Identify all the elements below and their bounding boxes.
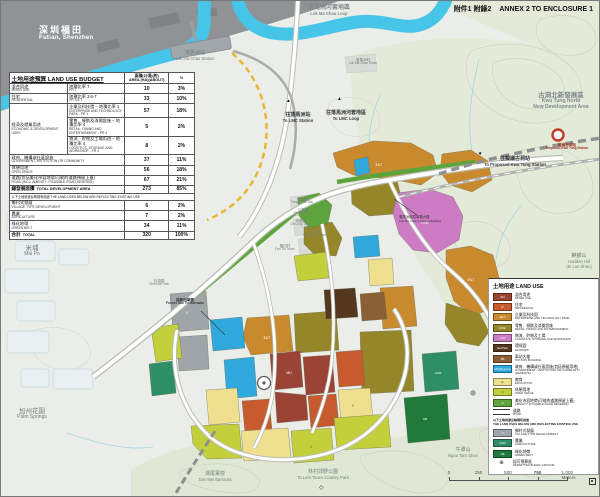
swatch-green-belt: GB (493, 450, 512, 458)
map-label-lmc-loop: 落馬洲河套地區 Lok Ma Chau Loop (308, 5, 350, 17)
swatch-education: E (493, 378, 512, 386)
map-label-yan-sau-wai: 仁壽圍 Yan Sau Wai (294, 208, 312, 216)
swatch-logistics: LSW (493, 334, 512, 342)
swatch-enterprise: E&T (493, 313, 512, 321)
annex-title-en: ANNEX 2 TO ENCLOSURE 1 (499, 6, 593, 13)
table-row: 休憩用地OPEN SPACE 56 18% (10, 165, 195, 175)
map-label-kwu-tung-north: 古洞北新發展區 Kwu Tung North New Development A… (533, 92, 588, 111)
legend-item-agriculture: AGR 農業AGRICULTURE (493, 439, 594, 447)
road-symbol-icon (493, 409, 510, 415)
table-row: 政府、機構或社區設施GOVERNMENT, INSTITUTION OR COM… (10, 155, 195, 165)
legend-item-residential: R 住宅RESIDENTIAL (493, 303, 594, 311)
proposed-kwu-tung-station-icon (553, 130, 564, 141)
map-label-haddon-hill: 麒麟山 Haddon Hill (Ki Lun Shan) (566, 254, 592, 269)
legend-item-road: 道路ROAD (493, 409, 594, 416)
map-label-former-san-tin-barracks: 前新田軍營 Former San Tin Barracks (166, 298, 204, 306)
map-label-mai-po: 米埔 Mai Po (24, 245, 40, 258)
north-indicator-icon (589, 478, 596, 485)
table-row: 道路(包括美化市容地帶/可能的道路預留上蓋)ROAD (INCL. AMENIT… (10, 175, 195, 185)
diamond-icon: ◇ (319, 484, 324, 491)
map-label-on-lung-tsuen: 安龍村 On Lung Tsuen (290, 219, 312, 227)
svg-text:E&T: E&T (468, 278, 476, 282)
svg-text:GB: GB (423, 417, 427, 421)
table-note-row: 以下土地用途反映現有用途 THE LAND USES BELOW ARE REF… (10, 193, 195, 200)
land-use-legend: 土地用途 LAND USE MU 混合用途MIXED USE R 住宅RESID… (488, 278, 599, 475)
map-label-to-proposed-kwu-tung: 往擬議古洞站 To Proposed Kwu Tung Station (484, 157, 546, 168)
scale-tick-label: 500 (504, 470, 512, 475)
zone-ecopark (324, 288, 358, 319)
annex-title-zh: 附件1 附錄2 (454, 6, 492, 13)
swatch-retail-dining: RDE (493, 324, 512, 332)
swatch-ecopark: EcoPark (493, 344, 512, 352)
scale-tick-label: 0 (448, 470, 451, 475)
col-header-pct: % (169, 73, 195, 84)
svg-text:E: E (352, 404, 354, 408)
map-label-proposed-kwu-tung-station: 擬議古洞站 Proposed Kwu Tung Station (546, 143, 588, 151)
legend-item-village: V 鄉村式發展VILLAGE TYPE DEVELOPMENT (493, 429, 594, 437)
map-label-lmc-station: 落馬洲站 Lok Ma Chau Station (175, 51, 214, 62)
map-label-tung-chan-wai: 東鎮圍 Tung Chan Wai (291, 197, 313, 205)
table-row: 經濟及就業用途ECONOMIC & DEVELOPMENT USES 企業及科技… (10, 104, 195, 118)
map-label-lam-tsuen-country-park: 林村郊野公園 To Lam Tsuen Country Park (297, 470, 349, 481)
swatch-amenity: A (493, 399, 512, 407)
svg-text:E&T: E&T (376, 163, 384, 167)
swatch-agriculture: AGR (493, 439, 512, 447)
map-label-ngau-tam-shan: 牛潭山 Ngau Tam Shan (448, 448, 478, 459)
legend-item-open-space: O 休憩用地OPEN SPACE (493, 388, 594, 396)
table-row: 混合用途MIXED USE 地積比率 7PR 7 10 3% (10, 84, 195, 94)
scale-bar: 0 250 500 750 1,000 Meters (441, 469, 599, 487)
zone-station-building (360, 292, 387, 321)
scale-end-label: 1,000 Meters (562, 470, 587, 480)
map-label-lmc-tsuen: 落馬洲村 Lok Ma Chau Tsuen (349, 58, 377, 66)
svg-text:E&T: E&T (264, 336, 272, 340)
legend-note: 以下土地用途反映現有用途 THE LAND USES BELOW ARE REF… (493, 419, 594, 426)
legend-item-mixed-use: MU 混合用途MIXED USE (493, 293, 594, 301)
legend-title: 土地用途 LAND USE (493, 282, 594, 290)
map-label-to-lmc-station: 往落馬洲站 To LMC Station (283, 113, 313, 124)
legend-item-green-belt: GB 綠化地帶GREEN BELT (493, 450, 594, 458)
swatch-station-building: SB (493, 355, 512, 363)
annex-title: 附件1 附錄2 ANNEX 2 TO ENCLOSURE 1 (448, 4, 593, 14)
col-header-area: 面積(公頃)(約) AREA (HA)(ABOUT) (125, 73, 169, 84)
map-label-tam-mei-barracks: 潭尾軍營 Tam Mei Barracks (198, 472, 232, 483)
legend-item-enterprise: E&T 企業及科技園ENTERPRISE AND TECHNOLOGY PARK (493, 313, 594, 321)
table-header-row: 土地用途預算 LAND USE BUDGET 面積(公頃)(約) AREA (H… (10, 73, 195, 84)
svg-text:AGR: AGR (435, 371, 442, 375)
table-row: 綠化地帶GREEN BELT 34 11% (10, 221, 195, 231)
table-subtotal-row: 總發展面積TOTAL DEVELOPMENT AREA 273 85% (10, 185, 195, 193)
burial-ground-icon: ⊕ (493, 460, 510, 466)
map-label-palm-springs: 加州花園 Palm Springs (17, 408, 47, 421)
legend-item-amenity: A 美化市容地帶(可能的道路預留上蓋)AMENITY (POSSIBLE ROA… (493, 399, 594, 407)
legend-item-gic: G/IC(Reserve) 政府、機構或社區設施(包括預留用地)GOVERNME… (493, 365, 594, 375)
legend-item-ecopark: EcoPark 環保園ECOPARK (493, 344, 594, 352)
table-total-row: 合計TOTAL 320 100% (10, 231, 195, 239)
arrow-up-icon: ▲ (286, 100, 291, 104)
legend-item-logistics: LSW 物流、貯物及工場LOGISTICS, STORAGE AND WORKS… (493, 334, 594, 342)
scale-tick-label: 750 (534, 470, 542, 475)
swatch-mixed-use: MU (493, 293, 512, 301)
map-label-fan-tin-tsuen: 蕃田村 Fan Tin Tsuen (275, 244, 295, 252)
legend-item-retail-dining: RDE 零售、餐飲及消閒設施RETAIL, DINING AND ENTERTA… (493, 324, 594, 332)
swatch-gic: G/IC(Reserve) (493, 365, 512, 373)
swatch-village: V (493, 429, 512, 437)
map-label-shek-wu-wai: 石湖圍 Shek Wu Wai (149, 279, 168, 287)
table-row: 住宅RESIDENTIAL 地積比率 3.6-7PR 3.6-7 33 10% (10, 94, 195, 104)
map-page: E&T E&T E&T LSW MU V AGR GB E O 附件1 附錄2 … (0, 0, 600, 497)
map-label-wing-ping-tsuen: 永平村 Wing Ping Tsuen (303, 230, 327, 238)
swatch-residential: R (493, 303, 512, 311)
table-row: 農業AGRICULTURE 7 2% (10, 211, 195, 221)
land-use-budget-table: 土地用途預算 LAND USE BUDGET 面積(公頃)(約) AREA (H… (9, 72, 195, 240)
table-title: 土地用途預算 LAND USE BUDGET (10, 73, 125, 84)
map-label-futian: 深圳福田 Futian, Shenzhen (39, 25, 93, 42)
arrow-up-icon: ▲ (337, 98, 342, 102)
svg-text:MU: MU (286, 371, 292, 375)
legend-item-station-building: SB 車站大樓STATION BUILDING (493, 355, 594, 363)
table-row: 鄉村式發展VILLAGE TYPE DEVELOPMENT 6 2% (10, 200, 195, 210)
map-label-crossing-building: 落馬洲過境事務大樓 Lok Ma Chau Crossing Building (399, 216, 441, 223)
legend-item-burial-ground: ⊕ 認可殯葬區PERMITTED BURIAL GROUND (493, 460, 594, 467)
scale-tick-label: 250 (475, 470, 483, 475)
legend-item-education: E 教育EDUCATION (493, 378, 594, 386)
swatch-open-space: O (493, 388, 512, 396)
map-label-to-lmc-loop: 往落馬洲河套地區 To LMC Loop (326, 111, 366, 122)
